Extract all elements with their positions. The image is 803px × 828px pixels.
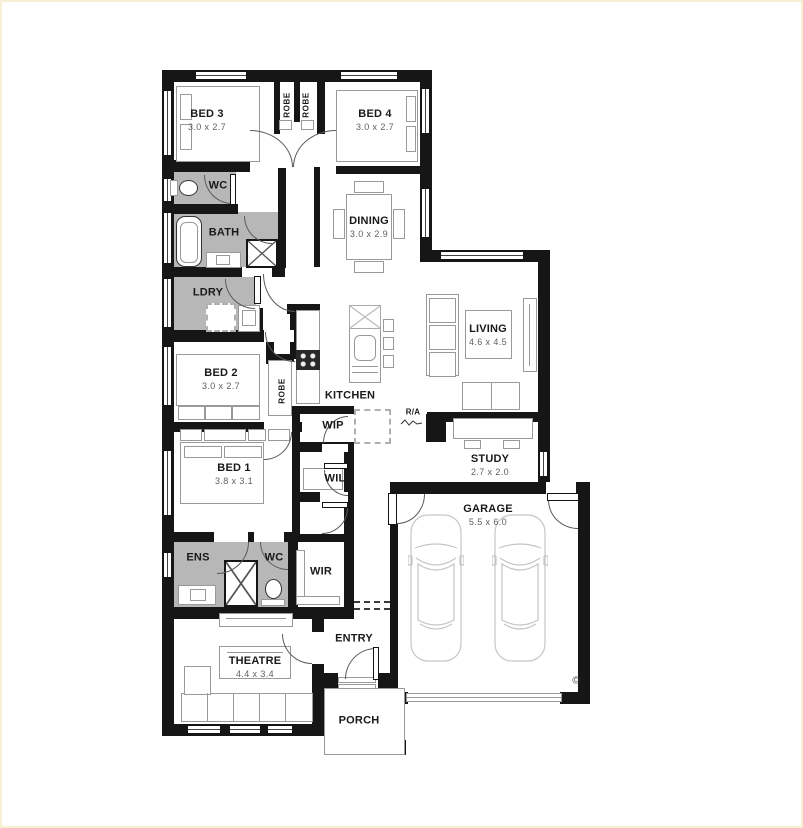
door-arc bbox=[548, 500, 578, 529]
door-leaf bbox=[388, 493, 397, 525]
door-arc bbox=[263, 274, 295, 312]
door-arc bbox=[264, 432, 292, 460]
room-dims: 3.0 x 2.7 bbox=[188, 121, 226, 132]
room-label-bath: BATH bbox=[209, 227, 240, 240]
furniture-outline bbox=[464, 440, 481, 449]
furniture-outline bbox=[296, 596, 340, 605]
wall-segment bbox=[560, 692, 590, 704]
furniture-outline bbox=[503, 440, 520, 449]
room-label-bed4: BED 4 3.0 x 2.7 bbox=[356, 108, 394, 132]
room-label-theatre: THEATRE 4.4 x 3.4 bbox=[229, 655, 282, 679]
furniture-outline bbox=[180, 429, 202, 441]
detail-line bbox=[259, 693, 260, 722]
wall-segment bbox=[426, 414, 446, 442]
room-label-wir: WIR bbox=[310, 566, 332, 579]
wall-opening bbox=[312, 632, 324, 664]
furniture-outline bbox=[242, 310, 256, 326]
toilet-tank bbox=[170, 180, 178, 196]
furniture-outline bbox=[205, 406, 232, 420]
furniture-outline bbox=[181, 693, 313, 722]
wall-segment bbox=[324, 673, 338, 689]
return-air-arrow-icon bbox=[400, 418, 424, 428]
door-leaf bbox=[324, 463, 348, 469]
floor-plan: BED 3 3.0 x 2.7 BED 4 3.0 x 2.7 ROBE ROB… bbox=[2, 2, 801, 826]
copyright-mark: © bbox=[572, 676, 579, 687]
detail-line bbox=[352, 372, 378, 373]
wall-segment bbox=[298, 406, 350, 414]
room-label-bed3: BED 3 3.0 x 2.7 bbox=[188, 108, 226, 132]
door-leaf bbox=[547, 493, 579, 501]
wall-opening bbox=[254, 532, 284, 542]
island-sink bbox=[354, 335, 376, 361]
furniture-outline bbox=[190, 589, 206, 601]
detail-line bbox=[406, 697, 562, 698]
dashed-appliance-space bbox=[354, 409, 391, 444]
furniture-outline bbox=[279, 120, 292, 130]
furniture-outline bbox=[184, 666, 211, 695]
furniture-outline bbox=[383, 355, 394, 368]
door-leaf bbox=[230, 174, 236, 205]
detail-line bbox=[491, 383, 492, 409]
island-hatch-icon bbox=[349, 305, 381, 329]
window bbox=[187, 725, 221, 734]
furniture-outline bbox=[523, 298, 537, 372]
furniture-outline bbox=[429, 298, 456, 323]
room-label-dining: DINING 3.0 x 2.9 bbox=[349, 215, 389, 239]
detail-line bbox=[285, 693, 286, 722]
room-label-wip: WIP bbox=[322, 420, 343, 433]
detail-line bbox=[529, 304, 530, 366]
toilet-bowl bbox=[265, 579, 282, 599]
door-leaf bbox=[254, 276, 261, 304]
room-name: BED 3 bbox=[188, 108, 226, 121]
window bbox=[229, 725, 261, 734]
window bbox=[163, 346, 172, 406]
furniture-outline bbox=[453, 418, 533, 439]
furniture-outline bbox=[429, 352, 456, 377]
return-air-label: R/A bbox=[406, 407, 420, 416]
room-label-garage: GARAGE 5.5 x 6.0 bbox=[463, 503, 512, 527]
window bbox=[539, 451, 548, 477]
window bbox=[440, 251, 524, 260]
room-label-ens: ENS bbox=[186, 552, 209, 565]
furniture-outline bbox=[333, 209, 345, 239]
room-label-porch: PORCH bbox=[339, 715, 380, 728]
door-arc bbox=[345, 648, 376, 679]
wall-segment bbox=[317, 70, 325, 134]
door-leaf bbox=[322, 502, 348, 508]
detail-line bbox=[352, 366, 378, 367]
wall-segment bbox=[312, 612, 324, 736]
detail-line bbox=[233, 693, 234, 722]
furniture-outline bbox=[406, 126, 416, 152]
window bbox=[163, 278, 172, 328]
room-label-study: STUDY 2.7 x 2.0 bbox=[471, 453, 509, 477]
detail-line bbox=[226, 618, 286, 619]
furniture-outline bbox=[219, 613, 293, 627]
furniture-outline bbox=[429, 325, 456, 350]
dashed-threshold bbox=[354, 608, 390, 612]
dashed-appliance-space bbox=[206, 303, 236, 332]
furniture-outline bbox=[296, 550, 305, 602]
room-label-bed2: BED 2 3.0 x 2.7 bbox=[202, 367, 240, 391]
wall-segment bbox=[278, 168, 286, 268]
wall-segment bbox=[296, 534, 346, 542]
room-label-robe-bed2: ROBE bbox=[277, 378, 286, 404]
detail-line bbox=[227, 652, 283, 653]
furniture-outline bbox=[406, 96, 416, 122]
wall-segment bbox=[162, 204, 238, 214]
window bbox=[421, 88, 430, 134]
cooktop-icon bbox=[296, 350, 320, 370]
furniture-outline bbox=[383, 319, 394, 332]
window bbox=[195, 71, 247, 80]
window bbox=[163, 450, 172, 516]
furniture-outline bbox=[232, 406, 260, 420]
detail-line bbox=[404, 702, 405, 755]
window bbox=[340, 71, 398, 80]
furniture-outline bbox=[216, 255, 230, 265]
wall-segment bbox=[294, 70, 300, 122]
wall-segment bbox=[314, 167, 320, 267]
door-arc bbox=[293, 130, 336, 167]
wall-opening bbox=[214, 532, 248, 542]
room-dims: 3.0 x 2.7 bbox=[356, 121, 394, 132]
room-label-robe-bed3: ROBE bbox=[282, 92, 291, 118]
room-label-wc-ens: WC bbox=[265, 552, 284, 565]
room-label-kitchen: KITCHEN bbox=[325, 390, 375, 403]
toilet-bowl bbox=[179, 180, 198, 196]
furniture-outline bbox=[178, 406, 205, 420]
window bbox=[163, 552, 172, 578]
window bbox=[163, 90, 172, 156]
dashed-threshold bbox=[354, 601, 390, 605]
room-label-wil: WIL bbox=[325, 473, 346, 486]
window bbox=[163, 212, 172, 264]
shower-icon bbox=[246, 239, 278, 268]
wall-opening bbox=[322, 444, 348, 452]
room-label-living: LIVING 4.6 x 4.5 bbox=[469, 323, 507, 347]
room-name: BED 4 bbox=[356, 108, 394, 121]
door-leaf bbox=[373, 647, 379, 680]
room-label-entry: ENTRY bbox=[335, 633, 373, 646]
window bbox=[421, 188, 430, 238]
furniture-outline bbox=[184, 446, 222, 458]
floor-plan-canvas: BED 3 3.0 x 2.7 BED 4 3.0 x 2.7 ROBE ROB… bbox=[0, 0, 803, 828]
wall-segment bbox=[336, 166, 420, 174]
furniture-outline bbox=[393, 209, 405, 239]
room-label-robe-bed4: ROBE bbox=[301, 92, 310, 118]
wall-segment bbox=[578, 482, 590, 704]
furniture-outline bbox=[301, 120, 314, 130]
car-icon bbox=[408, 512, 464, 664]
door-arc bbox=[250, 130, 293, 167]
car-icon bbox=[492, 512, 548, 664]
bathtub-inner bbox=[180, 222, 198, 263]
detail-line bbox=[207, 693, 208, 722]
toilet-tank bbox=[261, 599, 285, 606]
furniture-outline bbox=[383, 337, 394, 350]
room-label-bed1: BED 1 3.8 x 3.1 bbox=[215, 462, 253, 486]
furniture-outline bbox=[354, 261, 384, 273]
furniture-outline bbox=[204, 429, 246, 441]
room-label-wc: WC bbox=[209, 180, 228, 193]
room-label-ldry: LDRY bbox=[193, 287, 223, 300]
furniture-outline bbox=[354, 181, 384, 193]
window bbox=[267, 725, 293, 734]
furniture-outline bbox=[224, 446, 262, 458]
